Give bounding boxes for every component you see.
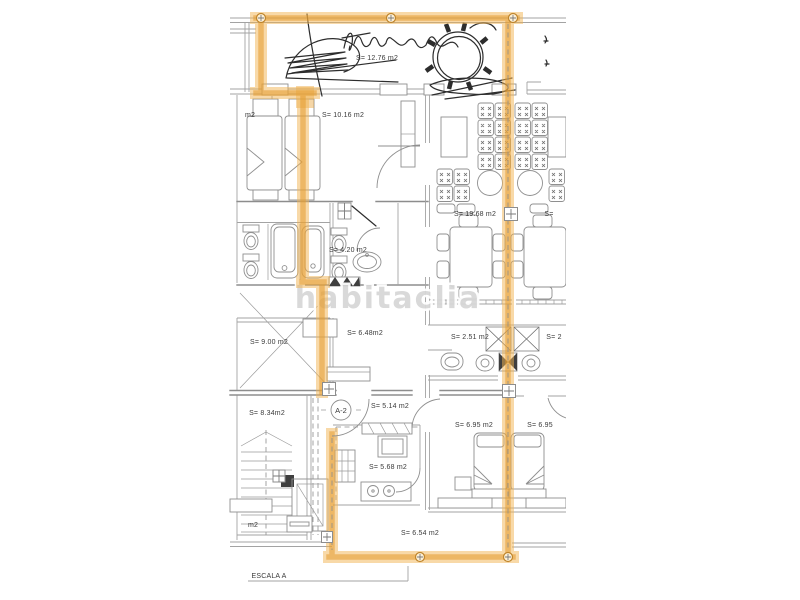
label-bathroom-2: S= 2.51 m2 xyxy=(451,334,489,341)
label-partial-bath: S= 2 xyxy=(546,334,561,341)
bathroom1-fixtures xyxy=(243,224,324,280)
floor-plan-image: habitaclia A-2 S= 12.76 m2 S= 10.16 m2 S… xyxy=(0,0,800,600)
bottom-left-objects xyxy=(230,499,312,532)
hall-furniture xyxy=(303,319,370,381)
label-bedroom-2: S= 6.95 m2 xyxy=(455,422,493,429)
label-partial-living: S= xyxy=(544,211,553,218)
label-living-room: S= 19.68 m2 xyxy=(454,211,496,218)
bathroom2-fixtures xyxy=(329,203,381,286)
label-stairwell: S= 8.34m2 xyxy=(249,410,285,417)
label-hall: S= 6.48m2 xyxy=(347,330,383,337)
scale-label: ESCALA A xyxy=(251,573,286,580)
label-crossed-room: S= 9.00 m2 xyxy=(250,339,288,346)
stairwell-elements xyxy=(241,432,328,532)
kitchen-furniture xyxy=(335,423,420,501)
label-bathroom-1: S= 4.20 m2 xyxy=(329,247,367,254)
unit-badge-label: A-2 xyxy=(335,406,347,415)
living-room-furniture xyxy=(437,103,566,213)
label-partial-m2-top: m2 xyxy=(245,112,255,119)
label-bedroom-right: S= 6.95 xyxy=(527,422,553,429)
label-bedroom-1: S= 10.16 m2 xyxy=(322,112,364,119)
label-kitchen: S= 5.68 m2 xyxy=(369,464,407,471)
label-partial-m2-bottom: m2 xyxy=(248,522,258,529)
bedroom2-furniture xyxy=(412,398,566,508)
floor-plan-svg: habitaclia A-2 S= 12.76 m2 S= 10.16 m2 S… xyxy=(0,0,800,600)
label-terrace-top: S= 12.76 m2 xyxy=(356,55,398,62)
label-distributor: S= 5.14 m2 xyxy=(371,403,409,410)
unit-badge: A-2 xyxy=(321,400,361,420)
label-terrace-bottom: S= 6.54 m2 xyxy=(401,530,439,537)
